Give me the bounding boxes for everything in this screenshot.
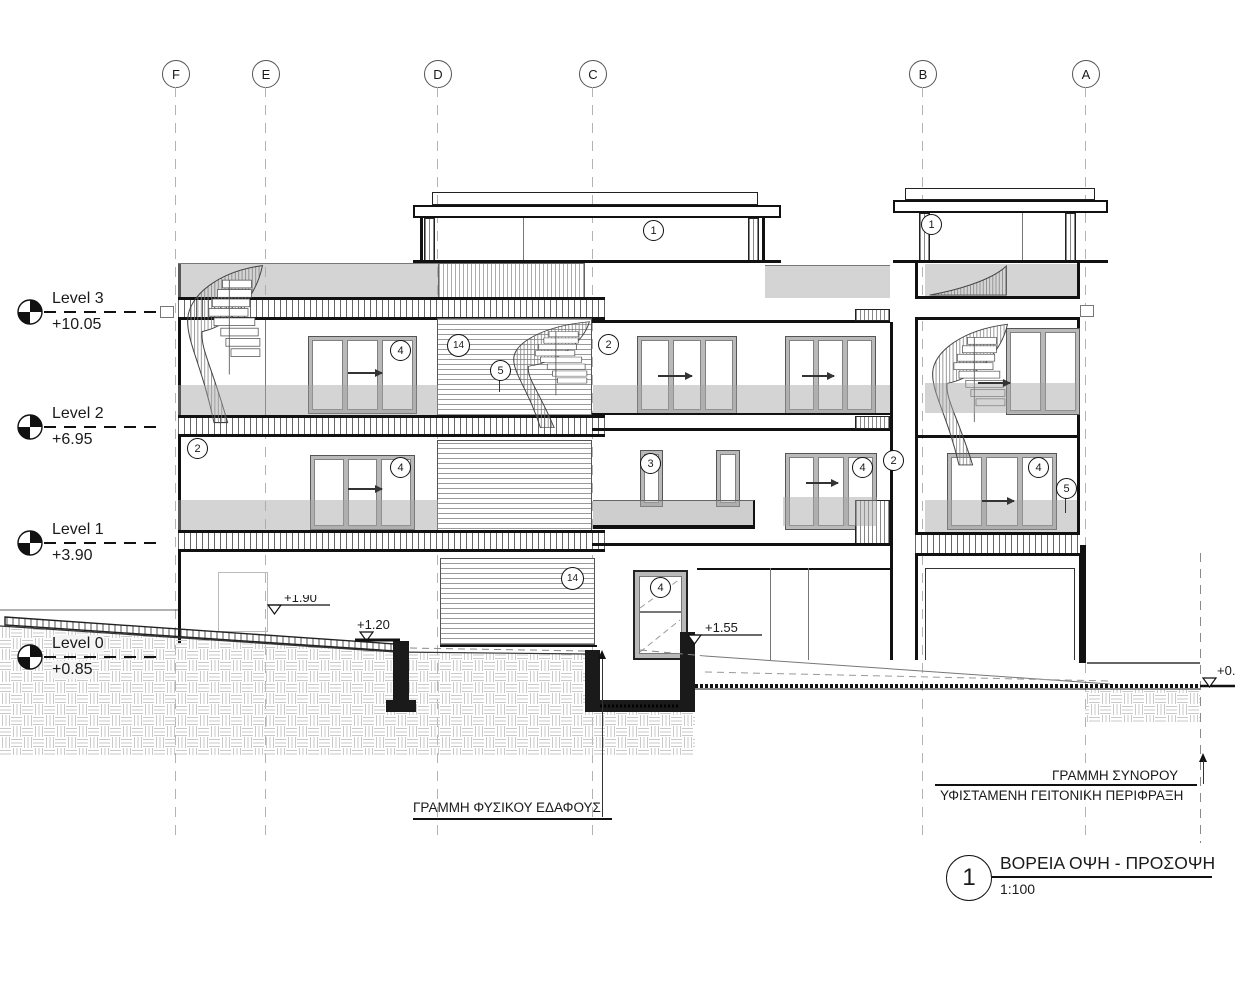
slab-hatch-strip [855, 309, 890, 321]
keynote-number: 4 [1035, 462, 1041, 474]
penthouse-roof-slab [893, 200, 1108, 213]
penthouse-base-line [893, 260, 1108, 263]
balcony-glass-railing [925, 383, 1077, 413]
natural-ground-label: ΓΡΑΜΜΗ ΦΥΣΙΚΟΥ ΕΔΑΦΟΥΣ [413, 800, 601, 815]
level-elevation: +6.95 [52, 431, 92, 449]
balcony-glass-railing [593, 385, 890, 413]
drawing-scale: 1:100 [1000, 881, 1035, 897]
keynote-number: 14 [567, 573, 578, 584]
keynote-number: 4 [397, 462, 403, 474]
keynote-tag: 4 [390, 340, 411, 361]
grid-bubble-f: F [162, 60, 190, 88]
grid-bubble-e: E [252, 60, 280, 88]
penthouse-pilaster-hatch [1065, 213, 1076, 263]
annotation-underline [413, 818, 612, 820]
penthouse-pilaster-hatch [424, 218, 435, 263]
level1-slab-edge [178, 530, 605, 552]
spot-elevation: +1.20 [357, 617, 390, 632]
slide-direction-arrow-icon [658, 375, 692, 377]
roof-glass-railing [765, 266, 890, 298]
keynote-tag: 4 [390, 457, 411, 478]
keynote-tag: 3 [640, 453, 661, 474]
keynote-tag: 2 [187, 438, 208, 459]
penthouse-roof-slab [413, 205, 781, 218]
penthouse-mullion [1022, 213, 1023, 263]
keynote-leader [1065, 497, 1066, 513]
datum-tick [160, 306, 174, 318]
slide-direction-arrow-icon [802, 375, 834, 377]
level-name: Level 0 [52, 635, 104, 653]
spot-elevation: +0. [1217, 663, 1235, 678]
railing-base-line [592, 413, 890, 415]
level-line [44, 656, 161, 658]
keynote-number: 1 [928, 219, 934, 231]
elevation-drawing: F E D C B A Level 3 +10.05 Level 2 +6.95… [0, 0, 1235, 981]
slide-direction-arrow-icon [348, 372, 382, 374]
penthouse-wall [420, 218, 423, 263]
keynote-tag: 14 [561, 567, 584, 590]
projecting-balcony-slab [593, 500, 755, 529]
slide-direction-arrow-icon [348, 488, 382, 490]
drawing-number: 1 [962, 864, 975, 892]
keynote-tag: 4 [1028, 457, 1049, 478]
level-line [44, 426, 161, 428]
opening-head-line [697, 568, 893, 570]
penthouse-wall [762, 218, 765, 263]
penthouse-parapet [905, 188, 1095, 200]
level1-slab-line [592, 543, 890, 546]
keynote-number: 14 [453, 340, 464, 351]
grid-label: F [172, 67, 180, 82]
roof-screen [438, 263, 585, 298]
annotation-leader [1203, 760, 1204, 784]
keynote-number: 5 [497, 365, 503, 377]
annotation-leader [602, 656, 603, 817]
keynote-tag: 4 [852, 457, 873, 478]
grid-bubble-a: A [1072, 60, 1100, 88]
grid-label: D [433, 67, 442, 82]
balcony-glass-railing [178, 385, 438, 415]
keynote-tag: 5 [490, 360, 511, 381]
keynote-number: 4 [859, 462, 865, 474]
keynote-number: 2 [605, 339, 611, 351]
level2-slab-line [592, 428, 890, 431]
datum-symbol-icon [17, 530, 43, 556]
level-name: Level 1 [52, 521, 104, 539]
datum-tick [1080, 305, 1094, 317]
keynote-tag: 1 [643, 220, 664, 241]
penthouse-mullion [523, 218, 524, 263]
keynote-number: 3 [647, 458, 653, 470]
drawing-title: ΒΟΡΕΙΑ ΟΨΗ - ΠΡΟΣΟΨΗ [1000, 853, 1215, 874]
keynote-number: 2 [194, 443, 200, 455]
penthouse-pilaster-hatch [748, 218, 759, 263]
keynote-number: 4 [397, 345, 403, 357]
slide-direction-arrow-icon [978, 382, 1010, 384]
datum-symbol-icon [17, 414, 43, 440]
balcony-glass-railing [783, 497, 877, 526]
narrow-window [716, 450, 740, 507]
level-name: Level 3 [52, 290, 104, 308]
grid-bubble-c: C [579, 60, 607, 88]
grid-label: C [588, 67, 597, 82]
keynote-tag: 14 [447, 334, 470, 357]
level3-slab-line [592, 320, 890, 323]
arrowhead-up-icon [598, 650, 606, 659]
level-line [44, 311, 161, 313]
annotation-underline [935, 784, 1197, 786]
grid-label: A [1082, 67, 1091, 82]
balcony-glass-railing [925, 500, 1077, 532]
level-name: Level 2 [52, 405, 104, 423]
drawing-number-bubble: 1 [946, 855, 992, 901]
grid-label: B [919, 67, 928, 82]
keynote-tag: 2 [598, 334, 619, 355]
grid-bubble-d: D [424, 60, 452, 88]
slab-hatch-strip [855, 416, 890, 429]
fence-label: ΥΦΙΣΤΑΜΕΝΗ ΓΕΙΤΟΝΙΚΗ ΠΕΡΙΦΡΑΞΗ [940, 788, 1183, 803]
keynote-number: 1 [650, 225, 656, 237]
title-underline [992, 876, 1212, 878]
level-elevation: +10.05 [52, 316, 101, 334]
slide-direction-arrow-icon [806, 482, 838, 484]
grid-bubble-b: B [909, 60, 937, 88]
spiral-stair-crest [928, 264, 1008, 297]
right-block-slab [915, 296, 1080, 320]
spot-elevation: +1.55 [705, 620, 738, 635]
grid-label: E [262, 67, 271, 82]
level-line [44, 542, 161, 544]
penthouse-parapet [432, 192, 758, 205]
level-elevation: +3.90 [52, 547, 92, 565]
datum-symbol-icon [17, 299, 43, 325]
keynote-number: 5 [1063, 483, 1069, 495]
spot-elevation: +1.90 [284, 595, 317, 605]
datum-symbol-icon [17, 644, 43, 670]
keynote-tag: 1 [921, 214, 942, 235]
keynote-tag: 2 [883, 450, 904, 471]
keynote-tag: 5 [1056, 478, 1077, 499]
slide-direction-arrow-icon [982, 500, 1014, 502]
site-ground: +1.90 +1.20 +1.55 +0. [0, 595, 1235, 780]
level-elevation: +0.85 [52, 661, 92, 679]
keynote-number: 4 [657, 582, 663, 594]
keynote-leader [499, 380, 500, 392]
balcony-glass-railing [178, 500, 438, 530]
spiral-stair [506, 320, 592, 430]
keynote-number: 2 [890, 455, 896, 467]
level1-slab-edge [915, 532, 1080, 556]
